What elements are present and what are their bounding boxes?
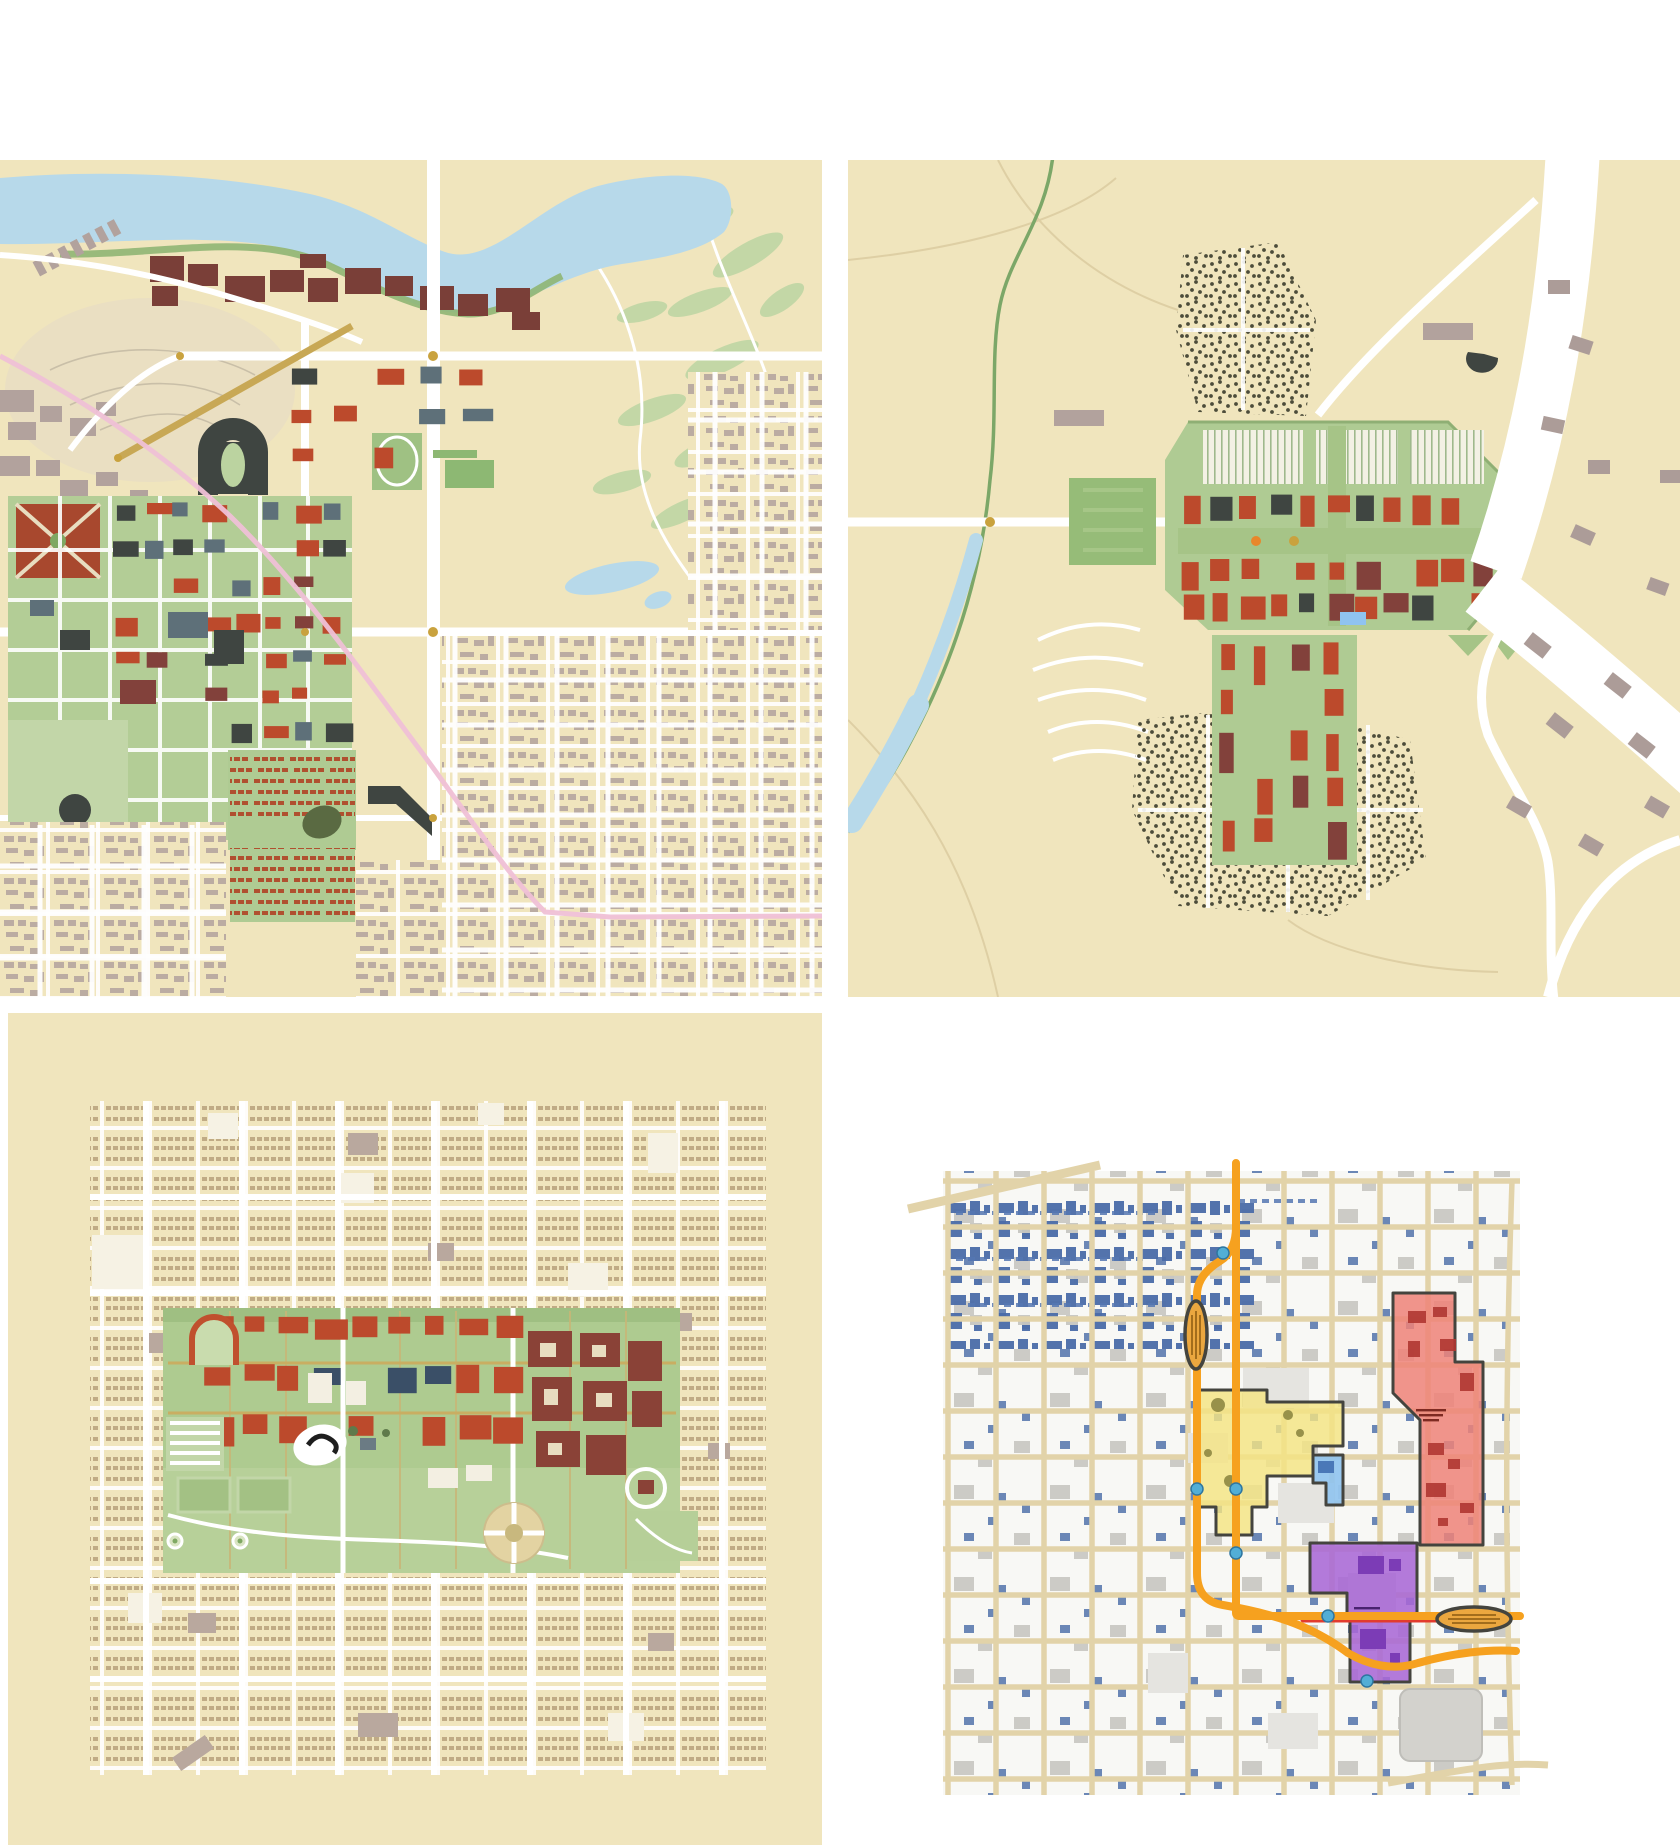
campus-building xyxy=(1221,644,1235,670)
campus-building xyxy=(378,369,405,385)
campus-building xyxy=(388,1368,417,1393)
map-campus-green-band xyxy=(8,1013,822,1845)
campus-building xyxy=(324,654,346,665)
campus-building xyxy=(243,1414,268,1434)
campus-building xyxy=(292,369,317,385)
campus-building xyxy=(425,1316,444,1335)
campus-building xyxy=(172,502,187,516)
campus-building xyxy=(1328,495,1350,512)
campus-building xyxy=(315,1319,348,1339)
campus-building xyxy=(292,688,307,699)
campus-building xyxy=(117,505,135,520)
campus-building xyxy=(1242,559,1260,579)
campus-building xyxy=(1416,560,1438,587)
campus-building xyxy=(425,1366,451,1384)
campus-building xyxy=(245,1316,265,1331)
campus-building xyxy=(1296,563,1315,580)
campus-building xyxy=(1213,593,1228,621)
sports-field xyxy=(445,460,494,488)
campus-building xyxy=(147,503,173,514)
campus-building xyxy=(279,1317,309,1333)
campus-building xyxy=(1221,690,1233,714)
campus-building xyxy=(1330,563,1345,580)
campus-building xyxy=(1328,822,1347,860)
four-map-figure-page xyxy=(0,0,1680,1845)
campus-building xyxy=(174,579,198,593)
campus-building xyxy=(263,577,280,595)
campus-building xyxy=(1357,562,1381,590)
campus-building xyxy=(245,1364,275,1381)
campus-building xyxy=(1241,597,1266,620)
campus-building xyxy=(1184,496,1201,524)
campus-building xyxy=(1293,776,1308,808)
map-campus-river-north xyxy=(0,160,822,997)
campus-building xyxy=(293,650,312,661)
campus-building xyxy=(295,722,312,740)
campus-building xyxy=(293,449,314,462)
terraces xyxy=(166,1417,224,1471)
campus-building xyxy=(493,1417,523,1443)
campus-building xyxy=(497,1316,524,1338)
campus-building xyxy=(1292,645,1310,671)
campus-building xyxy=(266,654,287,668)
campus-building xyxy=(459,1319,488,1335)
campus-building xyxy=(1254,818,1272,842)
south-pond-building xyxy=(59,794,91,826)
campus-building xyxy=(1271,594,1287,616)
campus-building xyxy=(460,1415,492,1439)
campus-building xyxy=(145,541,164,559)
map-downtown-districts xyxy=(848,1013,1680,1845)
campus-building xyxy=(1327,778,1343,806)
campus-building xyxy=(116,652,139,664)
mall-orange-dot xyxy=(1251,536,1261,546)
campus-building xyxy=(236,614,260,633)
campus-building xyxy=(1412,596,1433,621)
campus-building xyxy=(297,540,319,556)
campus-building xyxy=(173,539,193,555)
campus-building xyxy=(324,504,341,520)
map-c-svg xyxy=(8,1013,822,1845)
campus-building xyxy=(1239,496,1256,519)
campus-building xyxy=(277,1366,298,1391)
bridge-dot xyxy=(985,517,995,527)
campus-building xyxy=(459,370,482,386)
campus-building xyxy=(1300,496,1314,527)
campus-building xyxy=(116,618,138,637)
campus-stadium xyxy=(192,1317,236,1365)
campus-building xyxy=(1356,496,1374,522)
campus-building xyxy=(456,1365,479,1393)
campus-building xyxy=(1441,559,1464,582)
campus-building xyxy=(262,691,279,704)
campus-building xyxy=(423,1417,446,1446)
campus-building xyxy=(421,367,442,384)
campus-building xyxy=(1182,562,1199,591)
campus-band xyxy=(163,1308,698,1573)
campus-building xyxy=(296,506,322,524)
campus-building xyxy=(1299,593,1314,612)
campus-building xyxy=(205,688,227,701)
campus-building xyxy=(1291,730,1308,760)
map-a-svg xyxy=(0,160,822,997)
map-d-svg xyxy=(848,1013,1680,1845)
campus-building xyxy=(295,616,313,628)
campus-building xyxy=(1413,495,1431,525)
map-b-svg xyxy=(848,160,1680,997)
campus-building xyxy=(205,617,231,631)
campus-building xyxy=(1223,821,1235,852)
mall-gold-dot xyxy=(1289,536,1299,546)
campus-building xyxy=(1442,498,1460,525)
map-campus-creek-west xyxy=(848,160,1680,997)
campus-building xyxy=(419,409,445,424)
campus-building xyxy=(1184,595,1205,620)
campus-building xyxy=(1210,497,1232,521)
campus-building xyxy=(232,724,252,743)
campus-building xyxy=(204,539,224,552)
campus-building xyxy=(463,409,493,421)
campus-building xyxy=(264,726,289,738)
campus-building xyxy=(265,617,280,629)
campus-building xyxy=(334,406,357,422)
campus-building xyxy=(147,652,168,668)
campus-building xyxy=(1271,495,1292,515)
parking-rows xyxy=(1203,430,1303,484)
campus-building xyxy=(263,502,279,520)
campus-building xyxy=(1326,734,1339,771)
campus-building xyxy=(375,448,394,469)
campus-building xyxy=(323,540,346,557)
arena-building xyxy=(1400,1689,1482,1761)
campus-building xyxy=(1254,646,1265,685)
campus-building xyxy=(292,410,312,423)
campus-building xyxy=(1325,689,1344,716)
blue-district-building xyxy=(1318,1461,1334,1473)
circular-plaza xyxy=(484,1503,544,1563)
campus-building xyxy=(388,1317,410,1334)
campus-building xyxy=(352,1316,377,1337)
campus-building xyxy=(1324,642,1339,674)
campus-building xyxy=(494,1367,523,1393)
campus-pool xyxy=(1340,612,1366,625)
campus-building xyxy=(1210,559,1229,581)
campus-building xyxy=(326,723,353,742)
campus-building xyxy=(1383,498,1400,522)
campus-building xyxy=(204,1367,230,1385)
campus-building xyxy=(1257,779,1272,815)
campus-building xyxy=(113,541,139,557)
campus-building xyxy=(1384,593,1409,612)
campus-building xyxy=(1219,733,1234,773)
campus-building xyxy=(232,580,250,596)
